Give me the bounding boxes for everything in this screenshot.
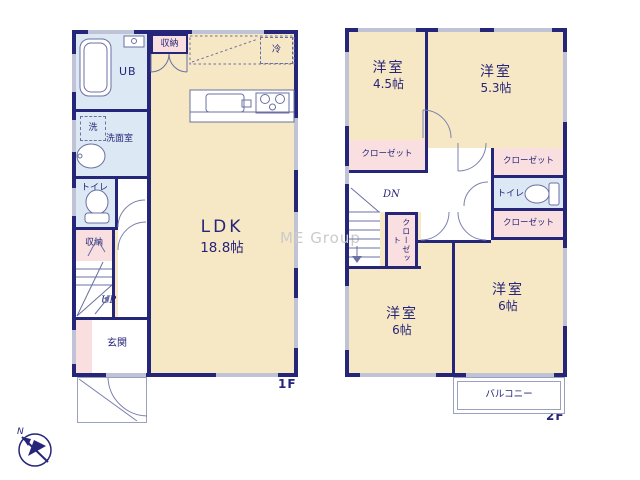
toilet-1f-label: トイレ — [81, 183, 108, 193]
stairs-dn-label: DN — [383, 189, 400, 201]
fridge-space: 冷 — [260, 37, 293, 64]
window — [345, 286, 349, 350]
window — [345, 166, 349, 184]
window — [494, 28, 552, 32]
compass-north-label: N — [17, 427, 24, 437]
watermark: ME Group — [280, 229, 361, 247]
stairs-2f — [349, 184, 380, 266]
hall-2f — [421, 212, 491, 243]
ldk-name: LDK — [172, 218, 272, 238]
entrance-shoe-storage — [76, 320, 92, 373]
balcony: バルコニー — [453, 377, 565, 414]
window — [72, 120, 76, 152]
window — [345, 52, 349, 126]
room-storage-stairs: 収納 — [76, 230, 115, 261]
room-6b-name: 洋室 — [462, 282, 554, 298]
hall-1f — [118, 179, 147, 320]
compass-north-icon — [19, 434, 51, 466]
window — [216, 373, 278, 377]
room-6b-label: 洋室 6帖 — [462, 282, 554, 314]
window — [360, 373, 436, 377]
room-6b-size: 6帖 — [462, 300, 554, 314]
washroom-label: 洗面室 — [106, 134, 133, 144]
window — [72, 330, 76, 364]
washer-space: 洗 — [80, 116, 106, 141]
ldk-label: LDK 18.8帖 — [172, 218, 272, 256]
room-53-label: 洋室 5.3帖 — [429, 64, 563, 96]
porch — [77, 377, 147, 423]
floor1-tag: 1F — [278, 378, 297, 392]
room-53-size: 5.3帖 — [429, 82, 563, 96]
window — [192, 30, 264, 34]
closet-45: クローゼット — [349, 140, 425, 173]
room-6a-size: 6帖 — [352, 324, 452, 338]
stairs-up-label: UP — [101, 295, 116, 307]
balcony-inner: バルコニー — [457, 381, 561, 410]
window — [88, 30, 134, 34]
room-45-size: 4.5帖 — [352, 78, 425, 92]
room-45-label: 洋室 4.5帖 — [352, 60, 425, 92]
window — [358, 28, 416, 32]
wall-6a-top — [349, 266, 421, 269]
toilet-2f-label: トイレ — [497, 189, 524, 199]
entrance-label: 玄関 — [107, 338, 127, 350]
hall-2f — [428, 148, 491, 176]
window — [72, 188, 76, 216]
window — [438, 28, 480, 32]
window — [72, 54, 76, 92]
window — [563, 248, 567, 326]
stairs-1f — [76, 261, 115, 317]
closet-hall: クローゼット — [385, 212, 418, 269]
room-53-name: 洋室 — [429, 64, 563, 80]
room-6a-label: 洋室 6帖 — [352, 306, 452, 338]
floorplan-canvas: 収納 収納 冷 洗 UB 洗面室 トイレ UP 玄関 LDK 18.8帖 1F … — [0, 0, 640, 480]
wall-ldk-left — [147, 34, 151, 373]
closet-53: クローゼット — [491, 148, 563, 178]
unit-bath-label: UB — [119, 66, 137, 79]
ldk-size: 18.8帖 — [172, 241, 272, 257]
window — [294, 298, 298, 348]
room-6a-name: 洋室 — [352, 306, 452, 322]
closet-6b: クローゼット — [491, 211, 563, 240]
room-storage-top: 収納 — [151, 34, 188, 54]
window — [563, 52, 567, 122]
window — [294, 118, 298, 170]
room-45-name: 洋室 — [352, 60, 425, 76]
wall-6a-6b-divider — [452, 243, 455, 373]
